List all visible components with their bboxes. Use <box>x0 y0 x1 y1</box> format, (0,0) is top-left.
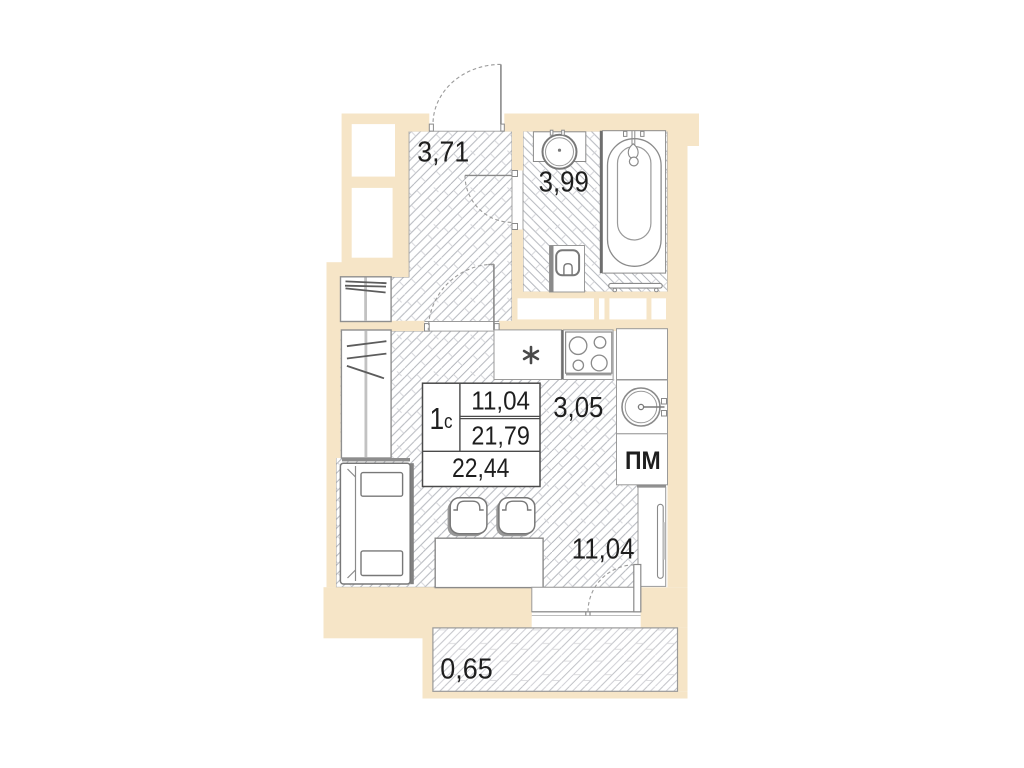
svg-text:ПМ: ПМ <box>625 447 661 475</box>
svg-text:3,05: 3,05 <box>553 390 603 423</box>
svg-text:22,44: 22,44 <box>452 453 509 483</box>
svg-text:3,99: 3,99 <box>539 165 589 198</box>
svg-text:с: с <box>444 410 453 433</box>
svg-text:3,71: 3,71 <box>417 136 469 168</box>
svg-text:11,04: 11,04 <box>471 387 530 416</box>
svg-text:1: 1 <box>430 402 445 436</box>
svg-text:21,79: 21,79 <box>471 423 530 451</box>
svg-text:0,65: 0,65 <box>440 653 492 685</box>
svg-text:11,04: 11,04 <box>572 532 635 565</box>
